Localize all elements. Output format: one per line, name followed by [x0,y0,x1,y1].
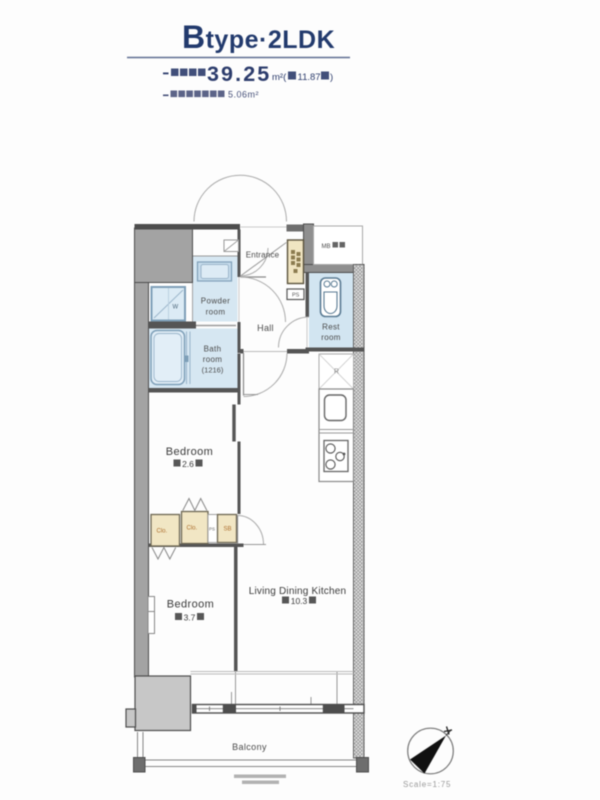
svg-text:5.06m²: 5.06m² [228,90,259,100]
svg-text:PS: PS [209,527,215,532]
svg-text:10.3: 10.3 [291,596,308,606]
svg-text:Clo.: Clo. [157,529,168,535]
svg-text:(1216): (1216) [202,366,224,375]
svg-text:PS: PS [292,293,300,299]
svg-text:2.6: 2.6 [182,459,194,469]
svg-text:R: R [334,369,339,376]
svg-text:Clo.: Clo. [187,526,198,532]
svg-text:3.7: 3.7 [184,613,196,623]
svg-text:11.87: 11.87 [298,72,321,83]
svg-text:Balcony: Balcony [232,742,267,752]
svg-text:Bath: Bath [204,345,222,354]
svg-text:Btype·2LDK: Btype·2LDK [182,19,335,55]
svg-text:Bedroom: Bedroom [166,446,213,458]
svg-text:SB: SB [224,527,232,533]
svg-text:Rest: Rest [322,323,340,332]
svg-text:W: W [173,305,179,311]
svg-text:Powder: Powder [201,297,231,306]
svg-text:Bedroom: Bedroom [167,599,214,611]
svg-text:): ) [330,72,333,83]
svg-text:Entrance: Entrance [246,251,280,260]
svg-text:Hall: Hall [257,323,274,333]
svg-text:39.25: 39.25 [207,62,271,86]
svg-text:Scale=1:75: Scale=1:75 [403,780,451,789]
svg-text:room: room [206,308,226,317]
svg-text:room: room [321,333,340,342]
svg-text:m²(: m²( [272,72,287,83]
svg-text:room: room [203,355,222,364]
svg-text:MB: MB [322,244,331,250]
